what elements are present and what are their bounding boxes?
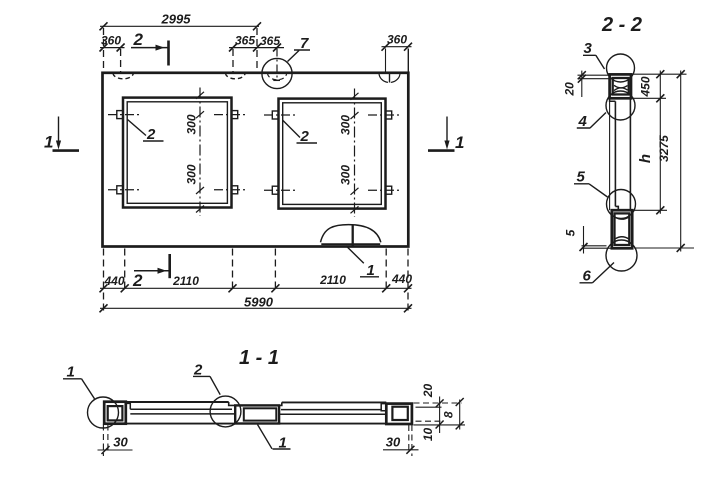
svg-text:1 - 1: 1 - 1 xyxy=(239,347,279,369)
svg-text:5: 5 xyxy=(577,169,586,186)
svg-text:2995: 2995 xyxy=(161,12,192,27)
svg-text:2: 2 xyxy=(133,30,144,49)
svg-text:1: 1 xyxy=(455,133,464,152)
svg-text:300: 300 xyxy=(185,114,199,134)
svg-text:20: 20 xyxy=(421,384,435,399)
svg-text:365: 365 xyxy=(235,34,255,48)
svg-text:440: 440 xyxy=(103,274,124,288)
svg-text:365: 365 xyxy=(260,34,280,48)
svg-text:1: 1 xyxy=(279,435,287,452)
svg-text:1: 1 xyxy=(367,262,375,279)
svg-text:3275: 3275 xyxy=(657,135,671,162)
svg-text:2: 2 xyxy=(132,271,143,290)
svg-text:2: 2 xyxy=(146,126,156,143)
svg-text:2110: 2110 xyxy=(319,273,346,287)
svg-text:2: 2 xyxy=(300,128,310,145)
svg-text:5: 5 xyxy=(564,229,578,236)
svg-text:440: 440 xyxy=(391,272,412,286)
svg-text:20: 20 xyxy=(563,82,577,97)
svg-text:1: 1 xyxy=(44,133,53,152)
svg-text:300: 300 xyxy=(185,164,199,184)
svg-text:300: 300 xyxy=(339,165,353,185)
svg-text:7: 7 xyxy=(300,35,309,52)
svg-text:5990: 5990 xyxy=(244,295,274,310)
svg-text:450: 450 xyxy=(639,76,653,97)
svg-text:10: 10 xyxy=(421,428,435,442)
svg-text:2110: 2110 xyxy=(172,274,199,288)
svg-text:360: 360 xyxy=(101,34,121,48)
svg-text:2: 2 xyxy=(193,362,203,379)
svg-text:360: 360 xyxy=(387,33,407,47)
svg-text:1: 1 xyxy=(67,364,75,381)
svg-text:6: 6 xyxy=(583,268,592,285)
svg-text:h: h xyxy=(637,154,654,163)
svg-text:4: 4 xyxy=(578,113,588,130)
svg-text:8: 8 xyxy=(442,411,456,418)
svg-text:30: 30 xyxy=(386,435,401,450)
svg-text:2 - 2: 2 - 2 xyxy=(601,14,642,36)
svg-text:3: 3 xyxy=(584,40,593,57)
svg-text:30: 30 xyxy=(113,435,128,450)
svg-text:300: 300 xyxy=(339,115,353,135)
